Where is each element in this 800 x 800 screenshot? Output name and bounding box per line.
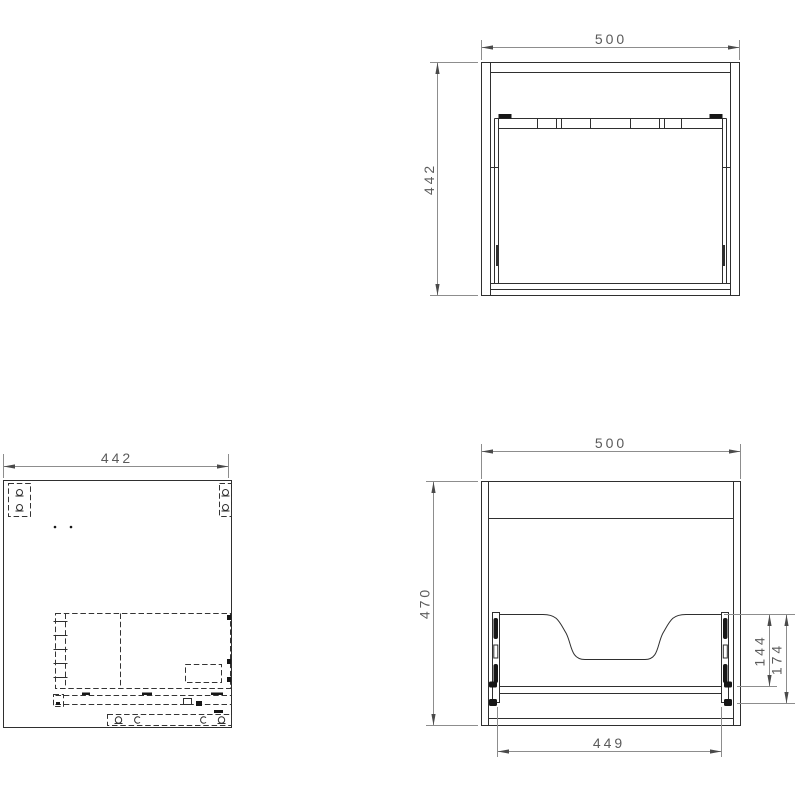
cabinet-technical-drawing: 500 442: [0, 0, 800, 800]
dim-arrow-down: [435, 284, 439, 296]
dim-front-opening-height: 174: [769, 615, 789, 704]
top-view-outer-outline: [482, 63, 740, 296]
side-view-hanger-screws: [16, 490, 230, 512]
front-view-right-slide: [722, 613, 729, 703]
dim-value-slide-height: 144: [752, 634, 768, 666]
dim-front-width: 500: [482, 435, 741, 479]
front-view-left-slide: [493, 613, 500, 703]
top-view-drawer-side-rails: [495, 119, 727, 284]
top-view: 500 442: [421, 31, 740, 296]
top-view-rail-tick-marks: [538, 119, 682, 129]
clip-c-symbol: [135, 717, 140, 723]
side-view-drill-dot: [54, 526, 57, 529]
side-view-rail-end-mark: [56, 702, 60, 705]
dim-arrow-up: [435, 63, 439, 75]
dim-side-depth: 442: [4, 450, 229, 478]
side-view-bottom-mark: [214, 710, 223, 713]
top-view-front-rail: [491, 284, 731, 290]
dim-arrow-up: [767, 615, 771, 627]
dim-arrow-right: [217, 464, 229, 468]
dim-front-drawer-width: 449: [498, 707, 722, 757]
side-view-hanger-bracket-back: [9, 484, 31, 517]
side-view-drawer-hidden-lines: [66, 614, 121, 689]
dim-front-height: 470: [417, 482, 479, 726]
dim-arrow-up: [431, 482, 435, 494]
dim-arrow-down: [784, 692, 788, 704]
dim-value-opening-height: 174: [769, 643, 785, 675]
dim-top-depth: 442: [421, 63, 478, 296]
side-view-slide-rail-hidden: [56, 696, 232, 705]
dim-value-front-height: 470: [417, 587, 433, 619]
dim-arrow-left: [498, 749, 510, 753]
top-view-side-panels: [491, 63, 731, 296]
dim-arrow-down: [431, 714, 435, 726]
dim-value-top-width: 500: [595, 31, 627, 47]
dim-value-front-width: 500: [595, 435, 627, 451]
dim-top-width: 500: [482, 31, 740, 60]
dim-value-front-drawer-width: 449: [593, 735, 625, 751]
front-view-drawer-back-cutout: [500, 615, 722, 660]
top-view-drawer-back-rail: [495, 119, 727, 129]
side-view-slide-rail-clips: [82, 693, 223, 707]
top-view-slide-segments: [497, 245, 724, 266]
side-view-bottom-strip-hidden: [108, 715, 232, 726]
dim-arrow-up: [784, 615, 788, 627]
dim-arrow-right: [710, 749, 722, 753]
front-view: 500 470 449 144 174: [417, 435, 796, 757]
dim-arrow-down: [767, 675, 771, 687]
side-view-hanger-bracket-front: [220, 484, 232, 517]
dim-arrow-right: [729, 449, 741, 453]
top-view-corner-bracket-left: [499, 114, 512, 119]
front-view-bottom-rail: [500, 687, 722, 694]
side-view-bottom-screws: [115, 717, 226, 724]
dim-value-top-depth: 442: [421, 163, 437, 195]
dim-arrow-left: [482, 449, 494, 453]
dim-arrow-right: [728, 45, 740, 49]
dim-arrow-left: [482, 45, 494, 49]
side-view-drawer-hidden-outline: [56, 614, 231, 689]
side-view: 442: [4, 450, 232, 728]
top-view-corner-bracket-right: [710, 114, 723, 119]
side-view-lock-hidden-outline: [186, 665, 222, 683]
dim-value-side-depth: 442: [101, 450, 133, 466]
side-view-outer-outline: [4, 481, 232, 728]
side-view-drill-dot: [70, 526, 73, 529]
dim-arrow-left: [4, 464, 16, 468]
clip-c-symbol: [201, 717, 206, 723]
